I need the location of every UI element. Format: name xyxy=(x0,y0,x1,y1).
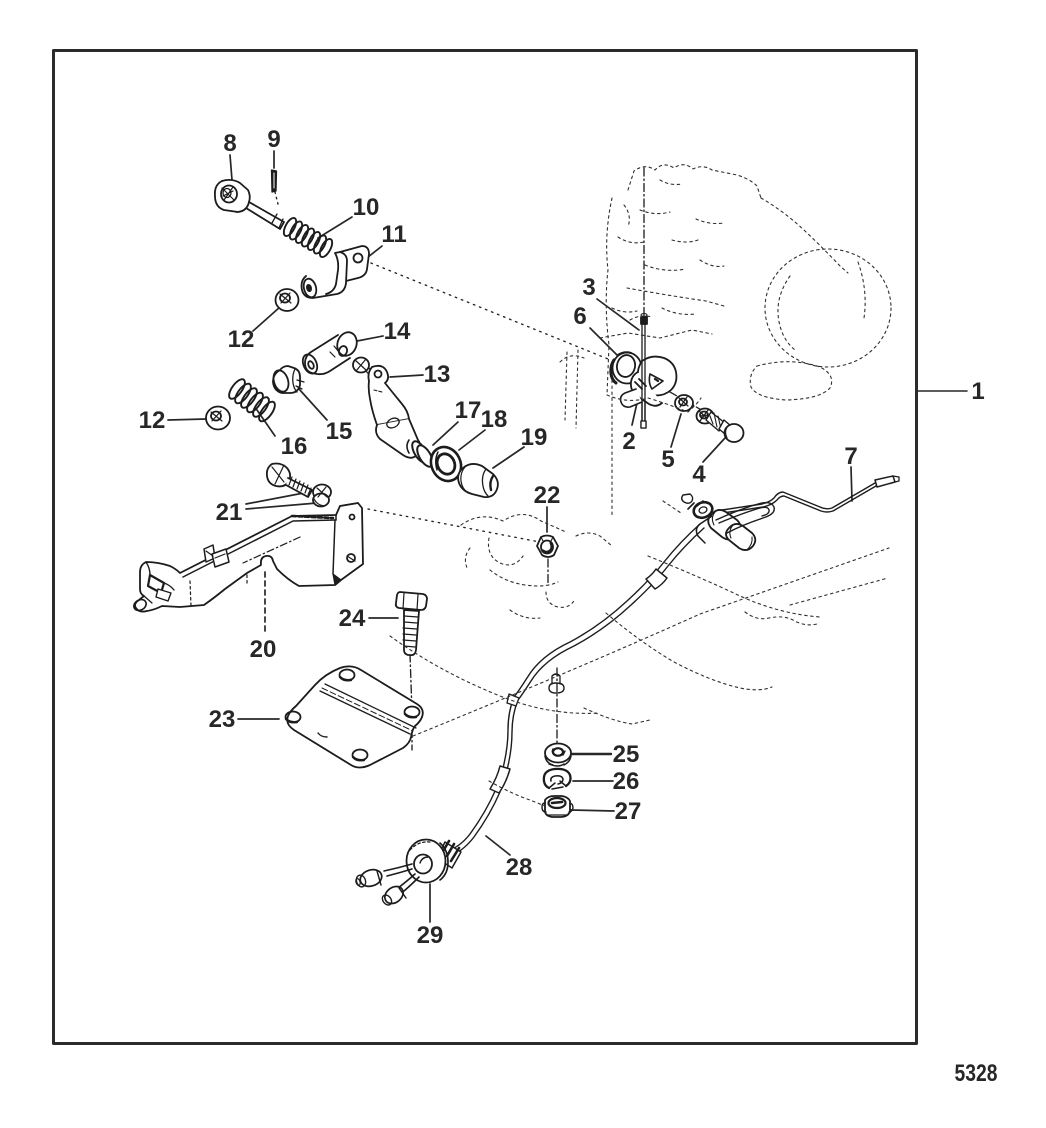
svg-text:17: 17 xyxy=(455,397,482,424)
svg-text:29: 29 xyxy=(417,922,444,949)
svg-text:5: 5 xyxy=(661,446,674,473)
svg-text:26: 26 xyxy=(613,768,640,795)
svg-text:9: 9 xyxy=(267,126,280,153)
svg-text:22: 22 xyxy=(534,482,561,509)
svg-text:12: 12 xyxy=(139,407,166,434)
svg-text:11: 11 xyxy=(381,221,406,248)
svg-text:18: 18 xyxy=(481,406,508,433)
svg-text:27: 27 xyxy=(615,798,642,825)
svg-text:4: 4 xyxy=(692,461,706,488)
svg-text:13: 13 xyxy=(424,361,451,388)
svg-text:24: 24 xyxy=(339,605,366,632)
svg-text:21: 21 xyxy=(216,499,243,526)
svg-text:1: 1 xyxy=(971,378,984,405)
svg-text:5328: 5328 xyxy=(955,1060,998,1087)
svg-text:14: 14 xyxy=(384,318,411,345)
svg-text:28: 28 xyxy=(506,854,533,881)
svg-text:23: 23 xyxy=(209,706,236,733)
svg-text:6: 6 xyxy=(573,303,586,330)
svg-text:15: 15 xyxy=(326,418,353,445)
svg-text:12: 12 xyxy=(228,326,255,353)
svg-text:16: 16 xyxy=(281,433,308,460)
svg-text:3: 3 xyxy=(582,274,595,301)
svg-text:25: 25 xyxy=(613,741,640,768)
svg-text:2: 2 xyxy=(622,428,635,455)
svg-text:10: 10 xyxy=(353,194,380,221)
svg-text:8: 8 xyxy=(223,130,236,157)
svg-text:20: 20 xyxy=(250,636,277,663)
svg-text:7: 7 xyxy=(844,443,857,470)
